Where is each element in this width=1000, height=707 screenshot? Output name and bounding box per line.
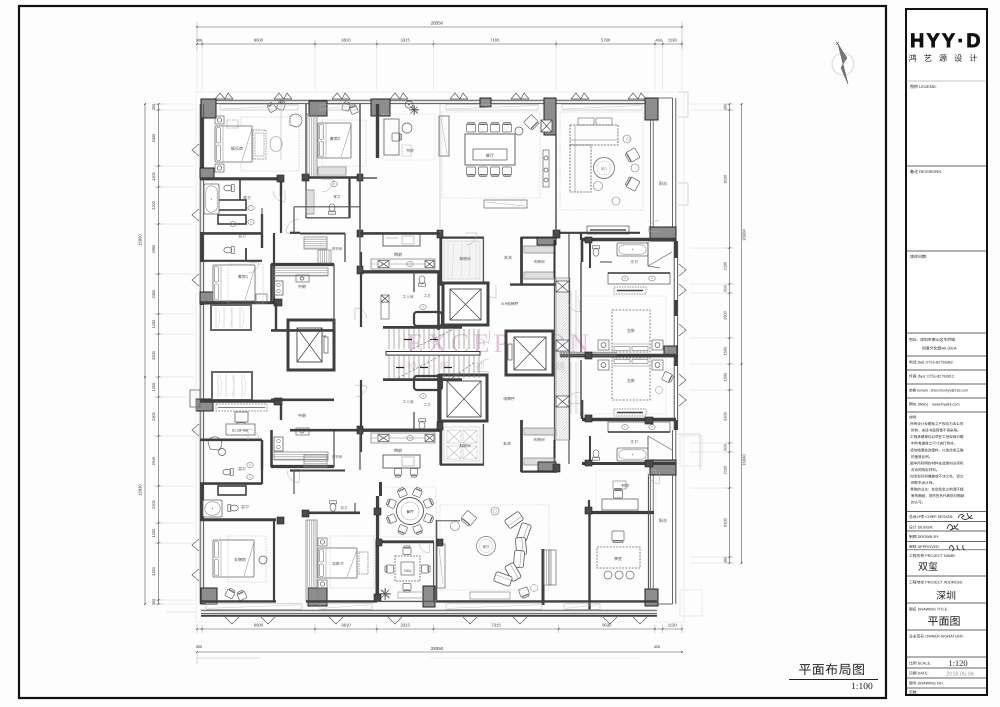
svg-text:300: 300 <box>196 645 202 649</box>
svg-text:500: 500 <box>723 443 728 450</box>
svg-text:6600: 6600 <box>254 623 264 628</box>
svg-text:传真 (fax) :0755-82793912: 传真 (fax) :0755-82793912 <box>909 374 954 379</box>
svg-text:300: 300 <box>151 103 156 110</box>
svg-text:中厨: 中厨 <box>298 413 306 418</box>
svg-text:․如发现任何偏差或不详之处，请立: ․如发现任何偏差或不详之处，请立 <box>909 474 964 478</box>
svg-text:2950: 2950 <box>151 244 156 253</box>
svg-text:盆卫: 盆卫 <box>238 466 246 471</box>
svg-text:比例 SCALE:: 比例 SCALE: <box>909 661 931 666</box>
svg-text:审核图纸，您的签名代表您对图纸: 审核图纸，您的签名代表您对图纸 <box>909 494 965 498</box>
svg-text:2100: 2100 <box>723 465 728 474</box>
svg-text:鞋帽间: 鞋帽间 <box>459 443 470 448</box>
svg-text:盆卫: 盆卫 <box>241 504 249 509</box>
svg-text:主卫: 主卫 <box>630 259 638 264</box>
svg-text:中所有量度之尺寸进行核对。: 中所有量度之尺寸进行核对。 <box>909 442 957 446</box>
svg-text:2300: 2300 <box>151 411 156 420</box>
svg-text:1:100: 1:100 <box>851 682 873 692</box>
svg-text:主卧: 主卧 <box>627 328 635 333</box>
svg-text:3300: 3300 <box>151 133 156 142</box>
svg-text:2100: 2100 <box>723 261 728 270</box>
svg-text:深圳: 深圳 <box>936 590 956 602</box>
svg-text:盆卫: 盆卫 <box>341 506 348 510</box>
svg-text:增改日期:: 增改日期: <box>910 254 927 259</box>
svg-text:客厅: 客厅 <box>483 545 490 549</box>
svg-text:․工程承建单位必须在工地现场对图: ․工程承建单位必须在工地现场对图 <box>909 435 964 439</box>
svg-text:衣帽间: 衣帽间 <box>533 259 544 264</box>
svg-text:工人房: 工人房 <box>402 294 414 299</box>
svg-text:2200: 2200 <box>151 200 156 209</box>
svg-text:工卫: 工卫 <box>423 403 431 407</box>
svg-text:次卧三: 次卧三 <box>332 561 344 566</box>
svg-text:8100: 8100 <box>723 174 728 183</box>
svg-text:审核 APPROVED:: 审核 APPROVED: <box>909 544 940 549</box>
svg-text:合合同指定材料。: 合合同指定材料。 <box>909 468 939 472</box>
svg-text:300: 300 <box>196 39 202 43</box>
svg-text:邮箱 (email) : shenzhenhyy@163.c: 邮箱 (email) : shenzhenhyy@163.com <box>909 389 968 393</box>
svg-text:500: 500 <box>723 284 728 291</box>
svg-text:阳台: 阳台 <box>659 181 667 186</box>
svg-text:8100: 8100 <box>723 517 728 526</box>
svg-text:1200: 1200 <box>151 382 156 391</box>
svg-text:3315: 3315 <box>400 623 410 628</box>
svg-text:3100: 3100 <box>723 411 728 420</box>
svg-text:2600: 2600 <box>723 310 728 319</box>
svg-text:15950: 15950 <box>138 234 143 246</box>
svg-text:HYY·D: HYY·D <box>910 30 983 52</box>
svg-text:․所有设计及图标之产权均为本公司: ․所有设计及图标之产权均为本公司 <box>909 422 964 426</box>
svg-text:电梯厅: 电梯厅 <box>503 396 515 401</box>
svg-text:客卫: 客卫 <box>243 195 251 200</box>
svg-text:主卧: 主卧 <box>627 378 635 383</box>
svg-text:洗衣房: 洗衣房 <box>332 454 343 459</box>
svg-text:双玺: 双玺 <box>918 561 938 573</box>
svg-text:鸿艺源设计: 鸿艺源设计 <box>909 54 985 63</box>
svg-text:图号 DRAWING NO.: 图号 DRAWING NO. <box>909 681 944 686</box>
svg-text:备注 REVISIONS:: 备注 REVISIONS: <box>910 169 942 174</box>
svg-text:西厨: 西厨 <box>394 448 402 453</box>
svg-text:․请勿随意放改图样，以免改变正确: ․请勿随意放改图样，以免改变正确 <box>909 447 964 452</box>
svg-text:8-9电梯厅: 8-9电梯厅 <box>502 301 519 306</box>
svg-text:总设计师 CHIEF DESIGN:: 总设计师 CHIEF DESIGN: <box>909 514 953 519</box>
svg-text:1130: 1130 <box>668 38 678 43</box>
svg-text:28350: 28350 <box>431 21 444 26</box>
svg-text:娱乐房: 娱乐房 <box>231 146 243 151</box>
svg-text:制图 DROWN BY:: 制图 DROWN BY: <box>909 534 939 539</box>
svg-text:设计 DESIGN:: 设计 DESIGN: <box>909 524 933 529</box>
svg-text:16600: 16600 <box>742 229 747 241</box>
svg-text:15930: 15930 <box>138 484 143 496</box>
svg-text:450: 450 <box>654 645 660 649</box>
svg-text:6600: 6600 <box>254 38 264 43</box>
svg-text:․尊敬的业主：在您签名之前请仔细: ․尊敬的业主：在您签名之前请仔细 <box>909 488 964 492</box>
svg-text:3350: 3350 <box>151 566 156 575</box>
svg-text:即联系设计师。: 即联系设计师。 <box>909 481 936 485</box>
svg-text:衣帽间: 衣帽间 <box>533 437 544 442</box>
svg-text:中厨: 中厨 <box>298 284 306 289</box>
svg-text:主卫: 主卫 <box>630 439 638 444</box>
svg-text:页数:: 页数: <box>909 690 918 695</box>
svg-text:1200: 1200 <box>151 319 156 328</box>
svg-text:BBQ: BBQ <box>404 569 412 573</box>
svg-text:说明:: 说明: <box>909 416 917 420</box>
svg-text:28350: 28350 <box>431 646 444 651</box>
svg-text:阳台: 阳台 <box>659 518 667 523</box>
svg-text:客卫: 客卫 <box>333 194 341 199</box>
svg-text:3610: 3610 <box>341 623 351 628</box>
svg-text:女佣房: 女佣房 <box>234 557 246 562</box>
svg-text:的量度比例。: 的量度比例。 <box>909 455 932 459</box>
svg-text:5780: 5780 <box>601 38 611 43</box>
svg-text:2940: 2940 <box>151 456 156 465</box>
svg-text:工程名称 PROJECT NAME:: 工程名称 PROJECT NAME: <box>909 553 956 558</box>
svg-text:鞋帽间: 鞋帽间 <box>459 256 470 261</box>
svg-text:工人房: 工人房 <box>402 399 414 404</box>
svg-text:女儿房书房: 女儿房书房 <box>232 429 249 433</box>
svg-text:电话 (tel) :0755-82793362: 电话 (tel) :0755-82793362 <box>909 360 953 365</box>
svg-text:客房1: 客房1 <box>238 274 249 279</box>
svg-text:平面布局图: 平面布局图 <box>799 663 866 677</box>
svg-text:地址: 深圳市南山区华侨城: 地址: 深圳市南山区华侨城 <box>909 337 955 342</box>
svg-text:创意文化园A5-301A: 创意文化园A5-301A <box>922 346 957 351</box>
svg-text:2500: 2500 <box>151 350 156 359</box>
svg-text:450: 450 <box>656 39 662 43</box>
svg-text:2018.05.08: 2018.05.08 <box>946 672 974 678</box>
svg-text:餐厅: 餐厅 <box>406 509 414 514</box>
svg-text:工卫: 工卫 <box>423 294 431 298</box>
svg-text:洗衣房: 洗衣房 <box>332 246 343 251</box>
svg-text:业主签名 OWNER SIGNATUER:: 业主签名 OWNER SIGNATUER: <box>909 634 964 639</box>
svg-text:网址 (Web) : www.hyy63.com: 网址 (Web) : www.hyy63.com <box>909 402 960 407</box>
svg-text:桢: 桢 <box>475 361 484 371</box>
svg-text:7315: 7315 <box>491 623 501 628</box>
svg-text:平面图: 平面图 <box>928 616 961 628</box>
svg-text:玄关: 玄关 <box>503 441 511 446</box>
svg-text:1130: 1130 <box>668 623 678 628</box>
svg-text:1500: 1500 <box>723 346 728 355</box>
svg-text:1200: 1200 <box>151 171 156 180</box>
svg-text:茶几: 茶几 <box>601 167 607 171</box>
svg-text:茶室: 茶室 <box>614 556 622 561</box>
svg-text:3610: 3610 <box>341 38 351 43</box>
svg-text:2360: 2360 <box>151 289 156 298</box>
svg-text:西厨: 西厨 <box>394 252 402 257</box>
svg-text:客房2: 客房2 <box>330 136 341 141</box>
svg-text:书房: 书房 <box>621 483 629 488</box>
svg-text:1200: 1200 <box>151 528 156 537</box>
svg-text:․图中所标明的材料在选用时必须符: ․图中所标明的材料在选用时必须符 <box>909 461 964 465</box>
svg-text:餐厅: 餐厅 <box>486 153 494 158</box>
svg-text:书房: 书房 <box>406 148 414 153</box>
svg-text:玄关: 玄关 <box>504 255 512 260</box>
svg-text:工程地址 PROJECT ADDRESS:: 工程地址 PROJECT ADDRESS: <box>909 580 963 585</box>
svg-text:图例 LEGEND:: 图例 LEGEND: <box>910 84 937 89</box>
svg-text:1:120: 1:120 <box>948 658 967 668</box>
svg-text:300: 300 <box>151 598 156 605</box>
svg-text:日期 DATE:: 日期 DATE: <box>909 671 929 676</box>
svg-text:3315: 3315 <box>400 38 410 43</box>
svg-text:16600: 16600 <box>742 454 747 466</box>
svg-text:图名 DRAWING TITLE:: 图名 DRAWING TITLE: <box>909 607 948 612</box>
svg-text:盆卫: 盆卫 <box>238 233 246 238</box>
svg-text:1500: 1500 <box>723 372 728 381</box>
svg-text:7165: 7165 <box>490 38 500 43</box>
svg-text:的认可。: 的认可。 <box>909 501 925 505</box>
svg-text:2200: 2200 <box>151 499 156 508</box>
svg-text:所有，未经书面同意不得采用。: 所有，未经书面同意不得采用。 <box>909 428 961 433</box>
